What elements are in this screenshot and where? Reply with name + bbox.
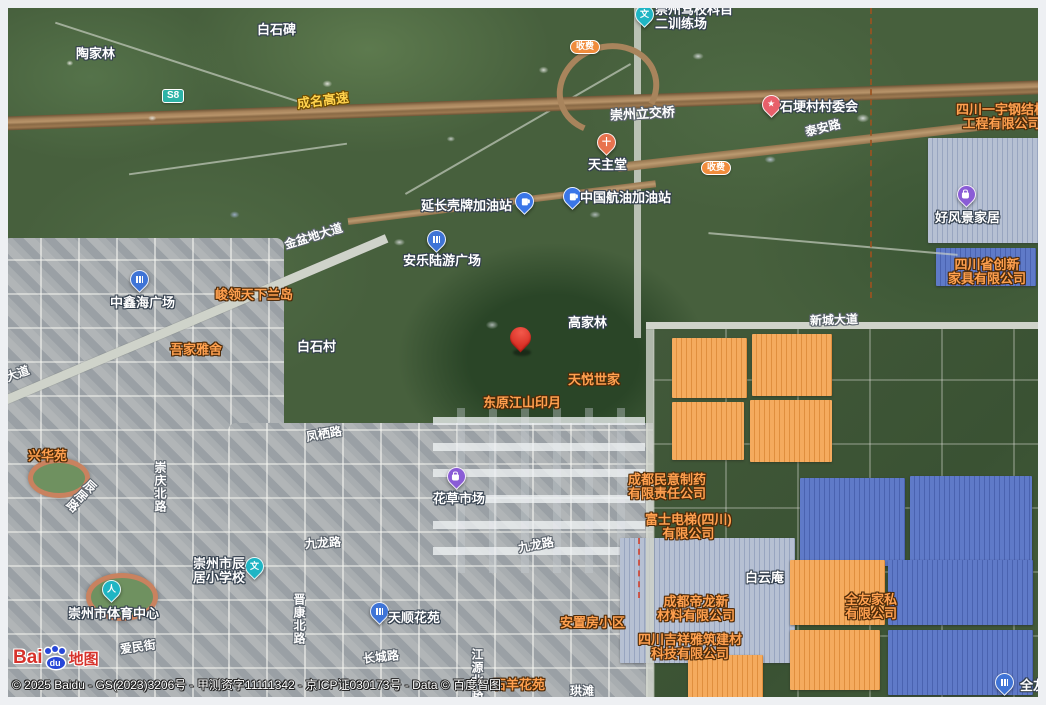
- road-label-chongqing-north: 崇庆北路: [153, 461, 166, 513]
- paw-toes: [45, 648, 51, 654]
- country-road: [129, 143, 347, 176]
- logo-text-map: 地图: [69, 648, 99, 669]
- company-label-dilong[interactable]: 成都帝龙新 材料有限公司: [657, 595, 735, 623]
- poi-label-wujia[interactable]: 吾家雅舍: [170, 343, 222, 357]
- area-label-baishicun: 白石村: [297, 340, 336, 354]
- poi-label-junling[interactable]: 峻领天下兰岛: [215, 288, 293, 302]
- company-label-chuangxin[interactable]: 四川省创新 家具有限公司: [948, 258, 1026, 286]
- warehouse-orange: [672, 338, 747, 398]
- poi-label-dongyuan[interactable]: 东原江山印月: [483, 396, 561, 410]
- company-label-line: 四川一宇钢结构: [956, 103, 1038, 117]
- poi-label-hangyou[interactable]: 中国航油加油站: [580, 191, 671, 205]
- company-label-quanyou[interactable]: 全友家私 有限公司: [845, 593, 897, 621]
- baidu-maps-page: S8 收费 收费 成名高速 成名高速 崇州立交桥 泰安路 金盆地大道 盆地大道 …: [0, 0, 1046, 705]
- area-label-baiyunan: 白云庵: [745, 571, 784, 585]
- company-label-minyi[interactable]: 成都民意制药 有限责任公司: [628, 473, 706, 501]
- poi-label-anle[interactable]: 安乐陆游广场: [403, 254, 481, 268]
- poi-label-line: 二训练场: [655, 17, 733, 31]
- company-label-line: 工程有限公司: [956, 117, 1038, 131]
- poi-label-jiaxiao[interactable]: 崇州驾校科目 二训练场: [655, 8, 733, 31]
- education-glyph: 文: [640, 10, 649, 19]
- map-copyright: © 2025 Baidu - GS(2023)3206号 - 甲测资字11111…: [12, 676, 501, 693]
- boundary-dashed: [638, 538, 640, 598]
- baidu-paw-icon: du: [45, 651, 67, 669]
- poi-label-quanyou-pin[interactable]: 全友: [1020, 679, 1038, 693]
- sports-glyph: 人: [107, 585, 116, 594]
- company-label-line: 有限公司: [845, 607, 897, 621]
- building-glyph: [136, 276, 143, 283]
- toll-badge: 收费: [570, 40, 600, 54]
- gas-station-pin-icon[interactable]: [511, 188, 538, 215]
- logo-text-bai: Bai: [13, 647, 43, 669]
- warehouse-orange: [790, 630, 880, 690]
- road-label-gongtan: 珙滩: [570, 685, 594, 697]
- poi-label-line: 崇州市辰: [193, 557, 245, 571]
- map-canvas[interactable]: S8 收费 收费 成名高速 成名高速 崇州立交桥 泰安路 金盆地大道 盆地大道 …: [8, 8, 1038, 697]
- area-label-taojialin: 陶家林: [76, 47, 115, 61]
- poi-label-xinghuayuan[interactable]: 兴华苑: [28, 449, 67, 463]
- warehouse-blue: [910, 476, 1032, 566]
- company-label-line: 有限责任公司: [628, 487, 706, 501]
- road-label-jiulong-west: 九龙路: [305, 536, 342, 551]
- company-label-line: 富士电梯(四川): [645, 513, 732, 527]
- building-glyph: [376, 608, 383, 615]
- company-label-line: 成都帝龙新: [657, 595, 735, 609]
- poi-label-shigengcun[interactable]: 石埂村村委会: [780, 100, 858, 114]
- gas-pump-glyph: [522, 198, 528, 205]
- company-label-line: 科技有限公司: [638, 647, 742, 661]
- warehouse-orange: [750, 400, 832, 462]
- company-label-line: 有限公司: [645, 527, 732, 541]
- road-label-jinkang-north: 晋康北路: [292, 593, 305, 645]
- warehouse-orange: [688, 655, 763, 697]
- company-label-line: 成都民意制药: [628, 473, 706, 487]
- country-road: [708, 232, 957, 256]
- shopping-bag-glyph: [452, 474, 459, 480]
- baidu-maps-logo: Bai du 地图: [13, 647, 99, 669]
- poi-label-huacao[interactable]: 花草市场: [433, 492, 485, 506]
- warehouse-light: [928, 138, 1038, 243]
- road-chengming-expressway: [8, 79, 1038, 131]
- gas-pump-glyph: [570, 193, 576, 200]
- poi-label-chenju-school[interactable]: 崇州市辰 居小学校: [193, 557, 245, 585]
- road-label-jinpendi: 金盆地大道: [283, 222, 344, 252]
- company-label-line: 四川省创新: [948, 258, 1026, 272]
- company-label-line: 家具有限公司: [948, 272, 1026, 286]
- area-label-baishibei: 白石碑: [257, 23, 296, 37]
- company-label-yiyu[interactable]: 四川一宇钢结构 工程有限公司: [956, 103, 1038, 131]
- shopping-bag-glyph: [962, 192, 969, 198]
- road-label-xincheng: 新城大道: [810, 313, 858, 328]
- company-label-line: 材料有限公司: [657, 609, 735, 623]
- road-label-lijiaoqiao: 崇州立交桥: [610, 105, 676, 122]
- company-label-line: 全友家私: [845, 593, 897, 607]
- boundary-dashed: [870, 8, 872, 298]
- poi-label-line: 居小学校: [193, 571, 245, 585]
- warehouse-orange: [672, 402, 744, 460]
- logo-text-du: du: [50, 658, 61, 668]
- company-label-line: 四川吉祥雅筑建材: [638, 633, 742, 647]
- road-label-taian: 泰安路: [804, 118, 842, 139]
- church-glyph: 十: [602, 138, 611, 147]
- route-shield-s8: S8: [162, 89, 184, 103]
- building-glyph: [1001, 679, 1008, 686]
- poi-label-tianzhutang[interactable]: 天主堂: [588, 158, 627, 172]
- star-glyph: ★: [767, 100, 775, 109]
- poi-label-haofengjing[interactable]: 好风景家居: [935, 211, 1000, 225]
- poi-label-anzhifang[interactable]: 安置房小区: [560, 616, 625, 630]
- poi-label-zhongxinhai[interactable]: 中鑫海广场: [110, 296, 175, 310]
- poi-label-tianyue[interactable]: 天悦世家: [568, 373, 620, 387]
- poi-label-tianshun[interactable]: 天顺花苑: [388, 611, 440, 625]
- warehouse-orange: [752, 334, 832, 396]
- area-label-gaojialin: 高家林: [568, 316, 607, 330]
- poi-label-yanchang[interactable]: 延长壳牌加油站: [421, 199, 512, 213]
- building-glyph: [433, 236, 440, 243]
- poi-label-tiyu[interactable]: 崇州市体育中心: [68, 607, 159, 621]
- company-label-fushi[interactable]: 富士电梯(四川) 有限公司: [645, 513, 732, 541]
- warehouse-blue: [800, 478, 905, 566]
- company-label-jixiang[interactable]: 四川吉祥雅筑建材 科技有限公司: [638, 633, 742, 661]
- toll-badge: 收费: [701, 161, 731, 175]
- interchange-ramp: [544, 29, 673, 149]
- warehouse-blue: [888, 560, 1033, 625]
- education-glyph: 文: [250, 562, 259, 571]
